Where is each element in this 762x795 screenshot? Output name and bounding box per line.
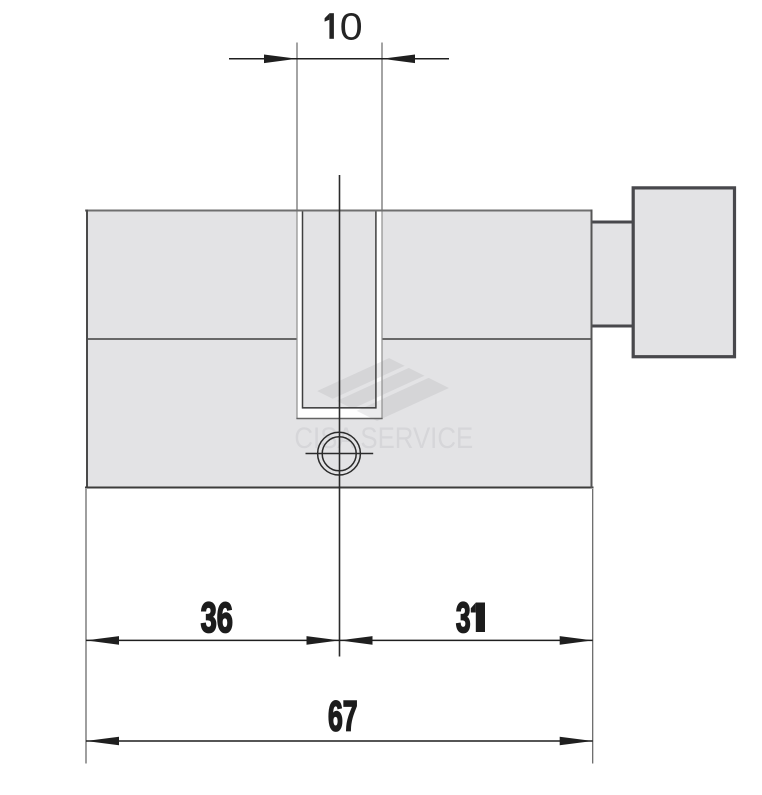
svg-text:36: 36 — [201, 593, 233, 641]
svg-text:0: 0 — [340, 6, 363, 48]
svg-text:CISA SERVICE: CISA SERVICE — [294, 421, 473, 454]
svg-text:3: 3 — [456, 594, 471, 642]
svg-text:67: 67 — [328, 692, 358, 740]
